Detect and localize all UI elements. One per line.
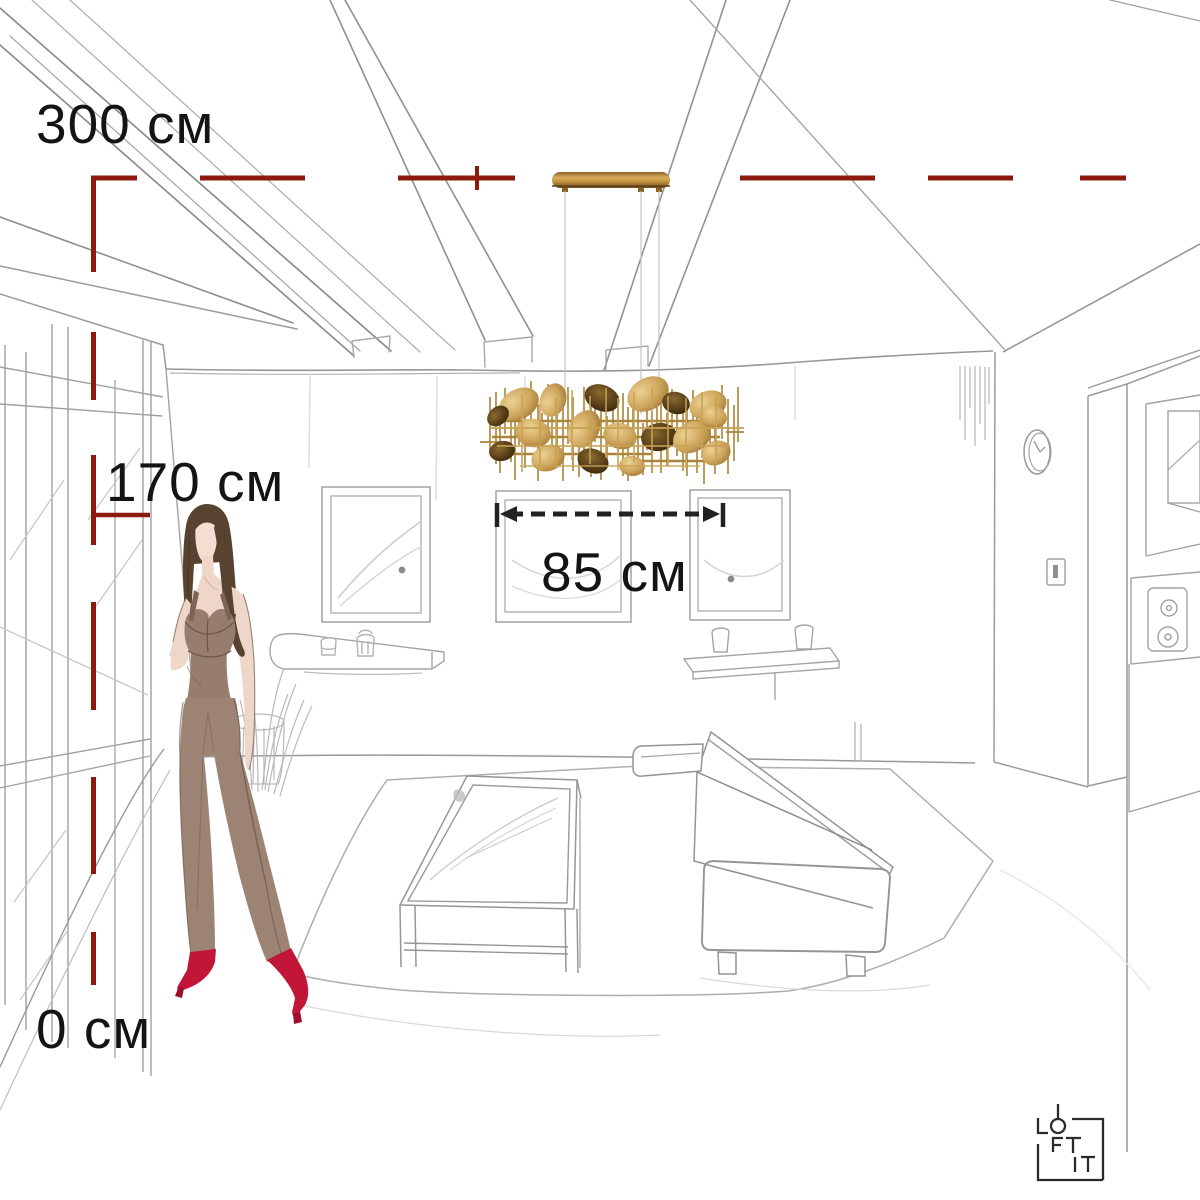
svg-text:85 см: 85 см — [541, 541, 688, 603]
svg-text:300 см: 300 см — [36, 93, 214, 155]
svg-text:170 см: 170 см — [106, 451, 284, 513]
svg-text:0 см: 0 см — [36, 998, 151, 1060]
